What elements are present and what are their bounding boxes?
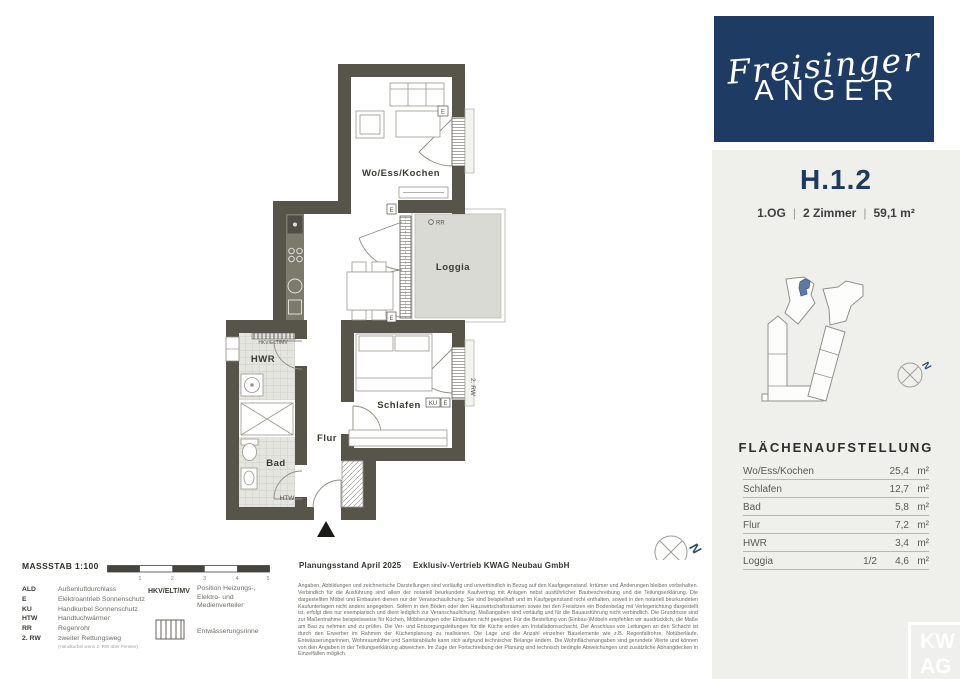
entrance-arrow-icon [317, 521, 335, 537]
label-rr: RR [436, 221, 445, 227]
hkv-legend-text: Position Heizungs-, Elektro- und Medienv… [197, 585, 277, 611]
building-outline [823, 281, 863, 325]
unit-info-card: H.1.2 1.OG|2 Zimmer|59,1 m² [712, 150, 960, 679]
area-row: HWR3,4m² [743, 534, 929, 552]
drainage-channel-label: Entwässerungsrinne [197, 628, 259, 635]
sideboard [399, 187, 448, 198]
unit-meta: 1.OG|2 Zimmer|59,1 m² [712, 206, 960, 220]
bath-sink-icon [241, 468, 257, 489]
hkv-position-marker [252, 333, 296, 339]
areas-table-title: FLÄCHENAUFSTELLUNG [712, 440, 960, 455]
unit-id: H.1.2 [712, 164, 960, 196]
floorplan-drawing: Wo/Ess/Kochen Loggia Schlafen Flur Bad H… [0, 0, 712, 560]
scale-tick: 3 [203, 576, 206, 582]
drainage-channel-icon [155, 619, 185, 640]
unit-floor: 1.OG [757, 206, 786, 220]
toilet-icon [241, 439, 258, 461]
north-label: N [687, 540, 705, 557]
shower [241, 403, 293, 435]
kitchen-counter [286, 214, 304, 320]
brand-logo: Freisinger ANGER [714, 16, 934, 142]
area-row: Flur7,2m² [743, 516, 929, 534]
area-row: Wo/Ess/Kochen25,4m² [743, 462, 929, 480]
label-hkv: HKV/ELT/MV [258, 340, 288, 346]
label-ku: KU [429, 401, 437, 407]
roller-shutter-box [465, 340, 474, 406]
info-panel: Freisinger ANGER H.1.2 1.OG|2 Zimmer|59,… [712, 0, 960, 679]
legend-note: (Handkurbel wenn 2. RW über Fenster) [58, 644, 152, 650]
legend-item: RRRegenrohr [22, 624, 152, 634]
building-outline [762, 394, 768, 401]
kwag-watermark: KW AG [908, 622, 960, 679]
planning-status: Planungsstand April 2025 [299, 561, 401, 570]
scale-tick: 4 [236, 576, 239, 582]
scale-tick: 5 [266, 576, 269, 582]
scale-bar: 1 2 3 4 5 [107, 565, 271, 582]
sales-contact: Exklusiv-Vertrieb KWAG Neubau GmbH [413, 561, 570, 570]
bed [356, 334, 432, 391]
label-bath: Bad [266, 458, 285, 469]
legend-item: ALDAußenluftdurchlass [22, 585, 152, 595]
lounge-board [396, 111, 440, 137]
legend-item: 2. RWzweiter Rettungsweg [22, 634, 152, 644]
label-e: E [443, 401, 447, 407]
washing-machine-icon [241, 374, 263, 396]
site-plan: N [738, 258, 943, 413]
compass-icon: N [655, 536, 705, 560]
label-bedroom: Schlafen [377, 400, 421, 411]
legend-item: HTWHandtuchwärmer [22, 614, 152, 624]
floorplan-sheet: Wo/Ess/Kochen Loggia Schlafen Flur Bad H… [0, 0, 960, 679]
unit-area: 59,1 m² [873, 206, 914, 220]
label-loggia: Loggia [436, 262, 470, 273]
label-e: E [389, 316, 393, 322]
label-e: E [389, 208, 393, 214]
area-row: Schlafen12,7m² [743, 480, 929, 498]
abbreviation-legend: ALDAußenluftdurchlass EElektroantrieb So… [22, 585, 152, 650]
label-htw: HTW [280, 495, 296, 502]
unit-rooms: 2 Zimmer [803, 206, 856, 220]
scale-tick: 1 [138, 576, 141, 582]
sofa [390, 83, 444, 106]
label-hall: Flur [317, 433, 337, 444]
bedroom-wardrobe [349, 430, 447, 446]
area-row: Bad5,8m² [743, 498, 929, 516]
scale-tick: 2 [171, 576, 174, 582]
compass-icon: N [898, 360, 933, 387]
legal-disclaimer: Angaben, Abbildungen und zeichnerische D… [298, 583, 698, 658]
label-living: Wo/Ess/Kochen [362, 168, 440, 179]
legend-item: EElektroantrieb Sonnenschutz [22, 595, 152, 605]
areas-table: Wo/Ess/Kochen25,4m² Schlafen12,7m² Bad5,… [743, 462, 929, 570]
hkv-legend-abbr: HKV/ELT/MV [148, 588, 190, 595]
area-row: Loggia1/24,6m² [743, 552, 929, 570]
building-outline [808, 326, 845, 401]
dining-table [347, 262, 393, 320]
label-e: E [441, 110, 445, 116]
hall-wardrobe [342, 461, 363, 507]
label-second-escape: 2. RW [469, 378, 476, 397]
legend-item: KUHandkurbel Sonnenschutz [22, 605, 152, 615]
sink-drain-icon [293, 223, 297, 227]
coffee-table [356, 111, 384, 138]
scale-title: MASSSTAB 1:100 [22, 561, 99, 571]
roller-shutter-box [465, 109, 474, 173]
label-utility: HWR [251, 354, 275, 365]
